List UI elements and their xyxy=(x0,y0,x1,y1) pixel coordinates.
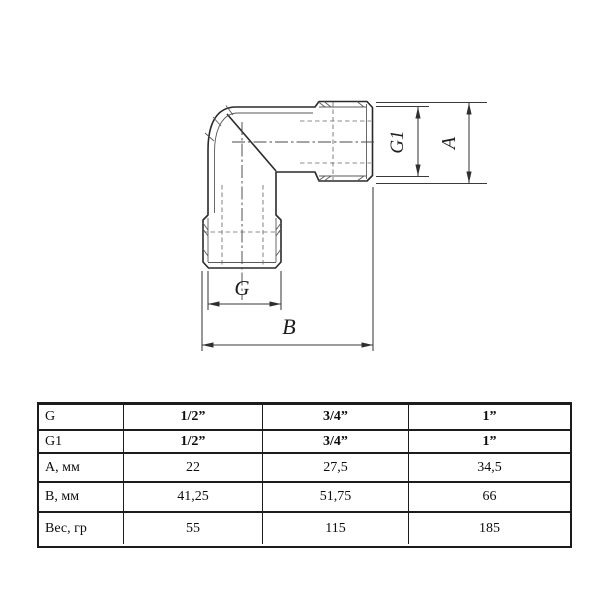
table-cell: 34,5 xyxy=(409,454,570,483)
table-cell: 51,75 xyxy=(263,483,409,513)
table-cell: 55 xyxy=(124,513,263,544)
table-cell: 115 xyxy=(263,513,409,544)
arrow-up xyxy=(415,107,420,119)
technical-drawing: G1 A G B xyxy=(0,0,600,398)
arrow-right xyxy=(270,301,282,306)
table-cell: 27,5 xyxy=(263,454,409,483)
table-cell: 3/4” xyxy=(263,431,409,454)
table-cell: 1” xyxy=(409,431,570,454)
dim-label-a: A xyxy=(438,136,460,151)
table-cell: 3/4” xyxy=(263,405,409,431)
dim-label-g: G xyxy=(234,276,249,300)
arrow-right xyxy=(362,342,374,347)
table-cell: 1/2” xyxy=(124,405,263,431)
table-row-label: А, мм xyxy=(39,454,124,483)
table-cell: 1/2” xyxy=(124,431,263,454)
table-cell: 41,25 xyxy=(124,483,263,513)
table-row-label: G1 xyxy=(39,431,124,454)
table-cell: 185 xyxy=(409,513,570,544)
dimension-g: G xyxy=(208,271,281,310)
arrow-down xyxy=(415,165,420,177)
table-row-label: G xyxy=(39,405,124,431)
elbow-outline xyxy=(203,102,373,269)
spec-table: G 1/2” 3/4” 1” G1 1/2” 3/4” 1” А, мм 22 … xyxy=(37,402,572,548)
table-row-label: В, мм xyxy=(39,483,124,513)
arrow-up xyxy=(466,103,471,115)
table-cell: 1” xyxy=(409,405,570,431)
centerlines xyxy=(232,122,377,300)
arrow-down xyxy=(466,172,471,184)
elbow-body xyxy=(203,102,373,269)
table-row-label: Вес, гр xyxy=(39,513,124,544)
table-cell: 66 xyxy=(409,483,570,513)
arrow-left xyxy=(208,301,220,306)
table-cell: 22 xyxy=(124,454,263,483)
dim-label-b: B xyxy=(282,314,295,339)
arrow-left xyxy=(202,342,214,347)
thread-hatch-ticks xyxy=(318,102,364,182)
page: G1 A G B xyxy=(0,0,600,600)
dimension-b: B xyxy=(202,187,373,351)
miter-edge xyxy=(227,114,276,171)
dimension-g1: G1 xyxy=(376,107,429,177)
corner-band-arc xyxy=(215,113,239,152)
dim-label-g1: G1 xyxy=(387,130,408,153)
